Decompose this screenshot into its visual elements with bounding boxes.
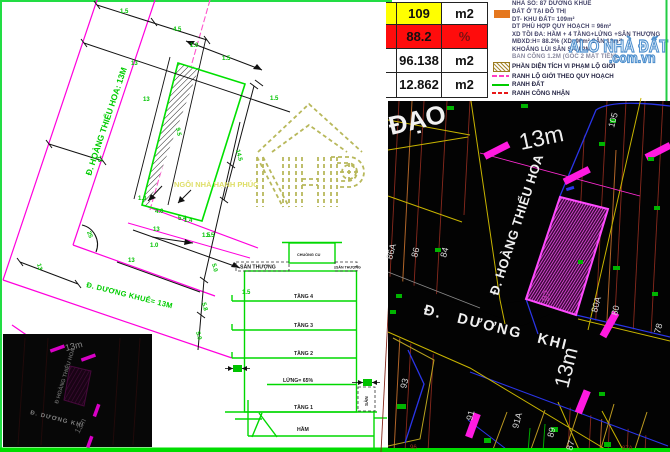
svg-text:.com.vn: .com.vn: [609, 50, 656, 66]
